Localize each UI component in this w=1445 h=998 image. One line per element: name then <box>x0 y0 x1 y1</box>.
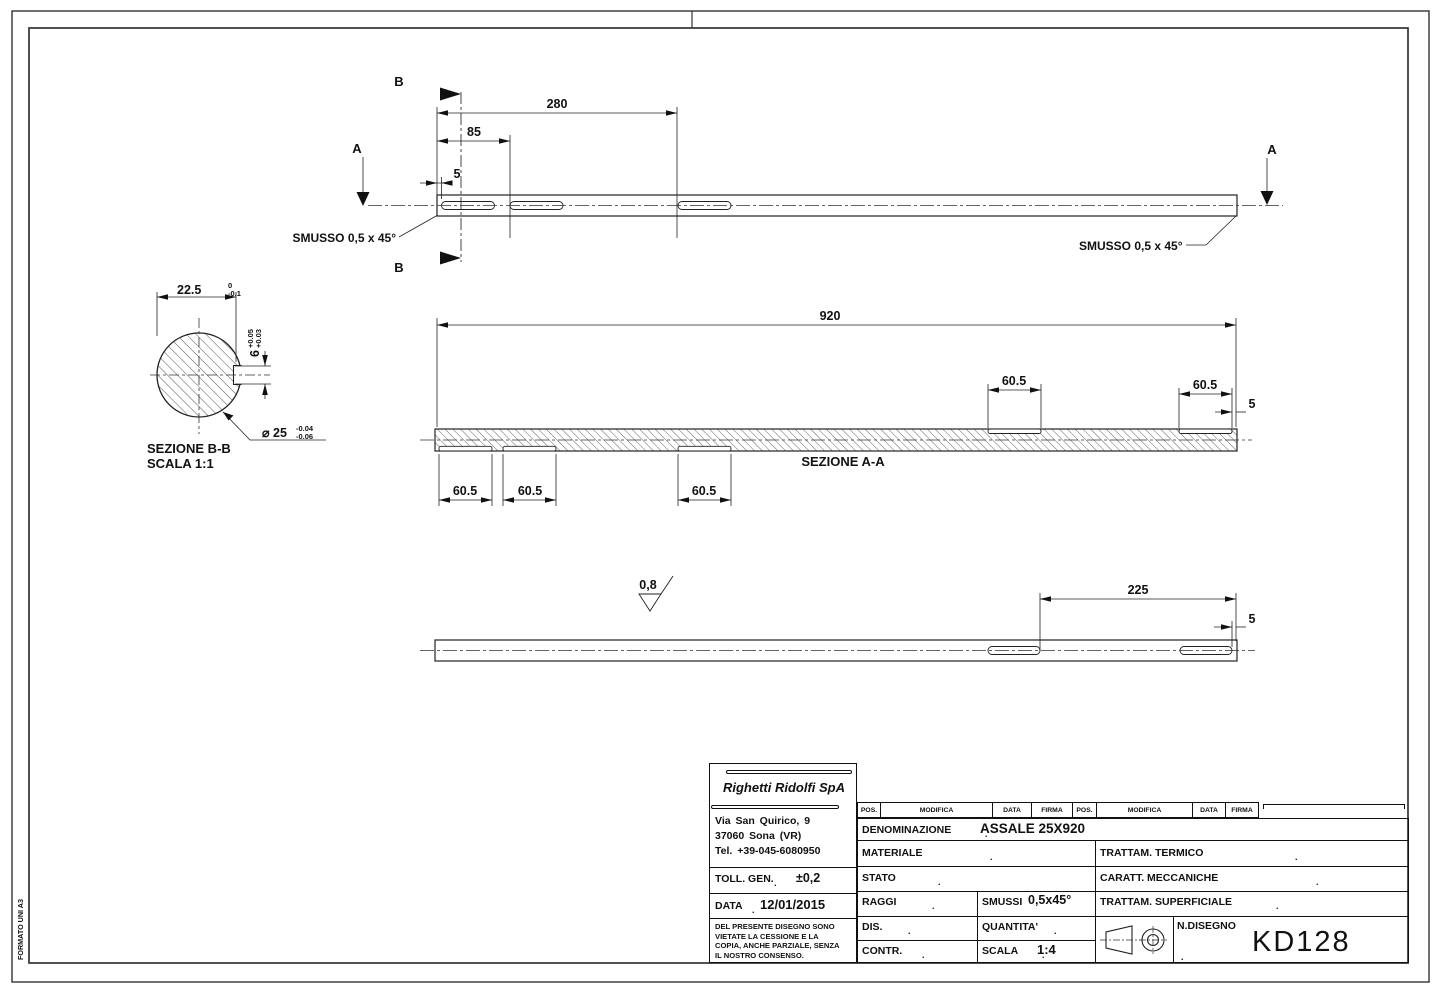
address-line-1: Via San Quirico, 9 <box>715 815 810 827</box>
dim-6-tol-low: +0.03 <box>254 329 263 348</box>
company-name: Righetti Ridolfi SpA <box>710 780 858 795</box>
section-aa: 920 60.5 60.5 60.5 60.5 60.5 5 SEZIONE A… <box>420 309 1256 506</box>
row-line <box>857 866 1409 867</box>
rev-firma-1: FIRMA <box>1031 802 1073 818</box>
form-dot: . <box>922 953 925 957</box>
form-dot: . <box>1181 955 1184 959</box>
roughness-value: 0,8 <box>639 578 656 592</box>
company-panel: Righetti Ridolfi SpA Via San Quirico, 9 … <box>709 763 857 963</box>
col-line <box>977 891 978 963</box>
address-line-3: Tel. +39-045-6080950 <box>715 845 820 857</box>
form-dot: . <box>908 929 911 933</box>
smussi-value: 0,5x45° <box>1028 893 1071 907</box>
section-aa-arrows <box>437 322 1236 503</box>
dim-5: 5 <box>454 167 461 181</box>
divider <box>710 893 858 894</box>
note-line-4: IL NOSTRO CONSENSO. <box>715 951 855 961</box>
scala-label: SCALA <box>982 945 1018 957</box>
rev-data-1: DATA <box>992 802 1032 818</box>
dim-85: 85 <box>467 125 481 139</box>
dim-60-5-4: 60.5 <box>1002 374 1026 388</box>
row-line <box>857 891 1409 892</box>
rev-strip-bracket <box>1263 804 1405 809</box>
dim-60-5-2: 60.5 <box>518 484 542 498</box>
format-label: FORMATO UNI A3 <box>16 899 25 960</box>
dim-920: 920 <box>820 309 841 323</box>
dim-5-bottom: 5 <box>1249 612 1256 626</box>
dim-280: 280 <box>547 97 568 111</box>
materiale-label: MATERIALE <box>862 847 922 859</box>
row-line <box>857 916 1409 917</box>
title-block: Righetti Ridolfi SpA Via San Quirico, 9 … <box>709 763 1409 963</box>
stato-label: STATO <box>862 872 896 884</box>
drawing-sheet: FORMATO UNI A3 B B A A 280 85 <box>0 0 1445 998</box>
data-label: DATA <box>715 900 743 912</box>
form-dot: . <box>938 880 941 884</box>
logo-bar-bottom <box>711 805 839 809</box>
copyright-note: DEL PRESENTE DISEGNO SONO VIETATE LA CES… <box>715 922 855 960</box>
smusso-right-label: SMUSSO 0,5 x 45° <box>1079 239 1183 253</box>
dim-22-5-tol-low: -0.1 <box>228 289 241 298</box>
note-line-3: COPIA, ANCHE PARZIALE, SENZA <box>715 941 855 951</box>
form-dot: . <box>932 904 935 908</box>
dis-label: DIS. <box>862 921 882 933</box>
raggi-label: RAGGI <box>862 896 896 908</box>
rev-pos-2: POS. <box>1072 802 1097 818</box>
dim-225: 225 <box>1128 583 1149 597</box>
dim-6-group: 6 +0.05 +0.03 <box>246 329 263 357</box>
toll-gen-value: ±0,2 <box>796 871 820 885</box>
row-line <box>857 940 1095 941</box>
data-value: 12/01/2015 <box>760 897 825 912</box>
top-view-dims <box>363 107 1267 245</box>
rev-modifica-1: MODIFICA <box>880 802 993 818</box>
dim-dia-tol-low: -0.06 <box>296 432 313 441</box>
top-view-arrows <box>357 88 1274 265</box>
dim-60-5-1: 60.5 <box>453 484 477 498</box>
rev-pos-1: POS. <box>857 802 881 818</box>
dim-dia-25: ⌀ 25 <box>262 426 287 440</box>
rev-modifica-2: MODIFICA <box>1096 802 1193 818</box>
row-line <box>857 840 1409 841</box>
section-bb: 22.5 0 -0.1 6 +0.05 +0.03 ⌀ 25 -0.04 -0.… <box>147 281 326 471</box>
note-line-1: DEL PRESENTE DISEGNO SONO <box>715 922 855 932</box>
dim-60-5-3: 60.5 <box>692 484 716 498</box>
projection-symbol <box>1098 925 1172 961</box>
section-a-label-right: A <box>1267 142 1277 157</box>
contr-label: CONTR. <box>862 945 902 957</box>
denominazione-value: ASSALE 25X920 <box>980 821 1085 836</box>
form-dot: . <box>1316 880 1319 884</box>
rev-firma-2: FIRMA <box>1225 802 1259 818</box>
col-line <box>1173 916 1174 963</box>
trattam-superficiale-label: TRATTAM. SUPERFICIALE <box>1100 896 1232 908</box>
divider <box>710 867 858 868</box>
divider <box>710 918 858 919</box>
section-bb-title: SEZIONE B-B <box>147 441 231 456</box>
dim-6: 6 <box>248 350 262 357</box>
trattam-termico-label: TRATTAM. TERMICO <box>1100 847 1203 859</box>
quantita-label: QUANTITA' <box>982 921 1038 933</box>
section-a-label-left: A <box>352 141 362 156</box>
form-dot: . <box>1054 929 1057 933</box>
form-dot: . <box>1295 855 1298 859</box>
ndisegno-value: KD128 <box>1252 926 1351 959</box>
form-dot: . <box>990 855 993 859</box>
ndisegno-label: N.DISEGNO <box>1177 920 1236 932</box>
scala-value: 1:4 <box>1037 942 1056 957</box>
note-line-2: VIETATE LA CESSIONE E LA <box>715 932 855 942</box>
caratt-meccaniche-label: CARATT. MECCANICHE <box>1100 872 1218 884</box>
section-b-label-bottom: B <box>394 260 403 275</box>
section-b-label-top: B <box>394 74 403 89</box>
form-dot: . <box>1276 904 1279 908</box>
top-view <box>368 92 1283 262</box>
bottom-view: 0,8 225 5 <box>420 576 1256 661</box>
dim-end-5: 5 <box>1249 397 1256 411</box>
dim-60-5-5: 60.5 <box>1193 378 1217 392</box>
form-dot: . <box>774 881 777 885</box>
denominazione-label: DENOMINAZIONE <box>862 824 951 836</box>
bottom-view-dims <box>1040 593 1246 651</box>
toll-gen-label: TOLL. GEN. <box>715 873 774 885</box>
col-line <box>1095 840 1096 963</box>
section-aa-title: SEZIONE A-A <box>801 454 885 469</box>
smusso-left-label: SMUSSO 0,5 x 45° <box>292 231 396 245</box>
bottom-view-arrows <box>1040 596 1236 630</box>
rev-data-2: DATA <box>1192 802 1226 818</box>
dim-22-5: 22.5 <box>177 283 201 297</box>
address-line-2: 37060 Sona (VR) <box>715 830 801 842</box>
section-aa-dims <box>437 318 1246 506</box>
smussi-label: SMUSSI <box>982 896 1022 908</box>
section-bb-scale: SCALA 1:1 <box>147 456 214 471</box>
logo-bar-top <box>726 770 852 774</box>
form-dot: . <box>752 908 755 912</box>
